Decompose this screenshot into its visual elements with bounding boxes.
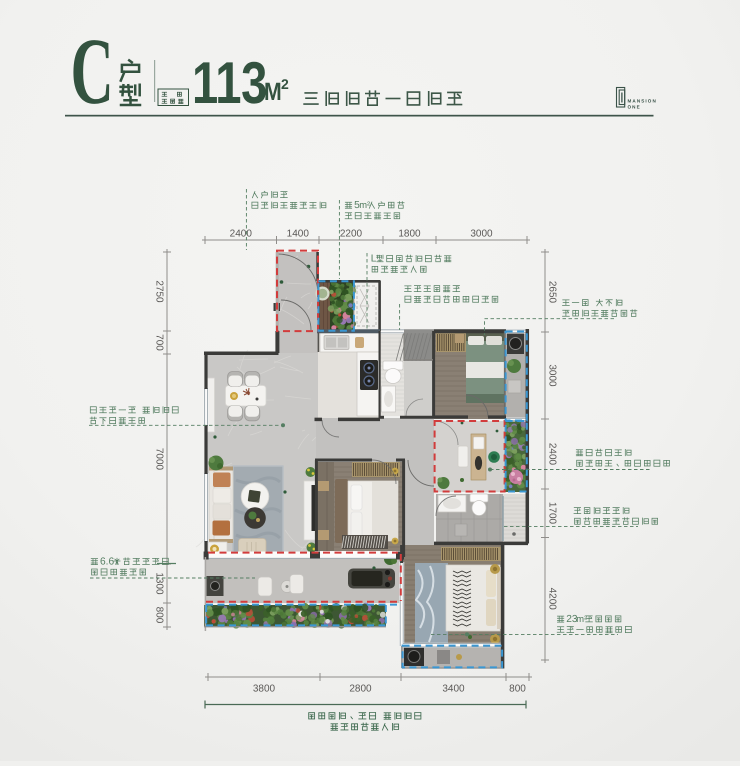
svg-text:6.6: 6.6 [100,556,114,567]
svg-text:3000: 3000 [470,229,493,240]
svg-text:800: 800 [509,684,526,695]
svg-text:2200: 2200 [340,229,363,240]
svg-text:3800: 3800 [253,684,276,695]
svg-text:113: 113 [192,50,267,116]
svg-text:ONE: ONE [628,104,641,109]
svg-text:L: L [371,254,377,265]
svg-text:m²: m² [359,199,370,210]
svg-text:M: M [264,78,282,106]
svg-text:C: C [71,18,114,124]
svg-text:700: 700 [154,334,165,351]
svg-text:2400: 2400 [230,229,253,240]
svg-text:2: 2 [281,76,289,92]
svg-text:MANSION: MANSION [628,99,657,104]
svg-text:800: 800 [154,607,165,624]
svg-text:1700: 1700 [547,502,558,525]
svg-text:2400: 2400 [547,443,558,466]
svg-text:7000: 7000 [154,448,165,471]
svg-text:1800: 1800 [398,229,421,240]
svg-text:1300: 1300 [154,572,165,595]
svg-text:2650: 2650 [547,281,558,304]
svg-text:1400: 1400 [287,229,310,240]
svg-text:3400: 3400 [442,684,465,695]
svg-text:2800: 2800 [349,684,372,695]
svg-text:3000: 3000 [547,364,558,387]
svg-text:2750: 2750 [154,280,165,303]
svg-text:4200: 4200 [547,588,558,611]
